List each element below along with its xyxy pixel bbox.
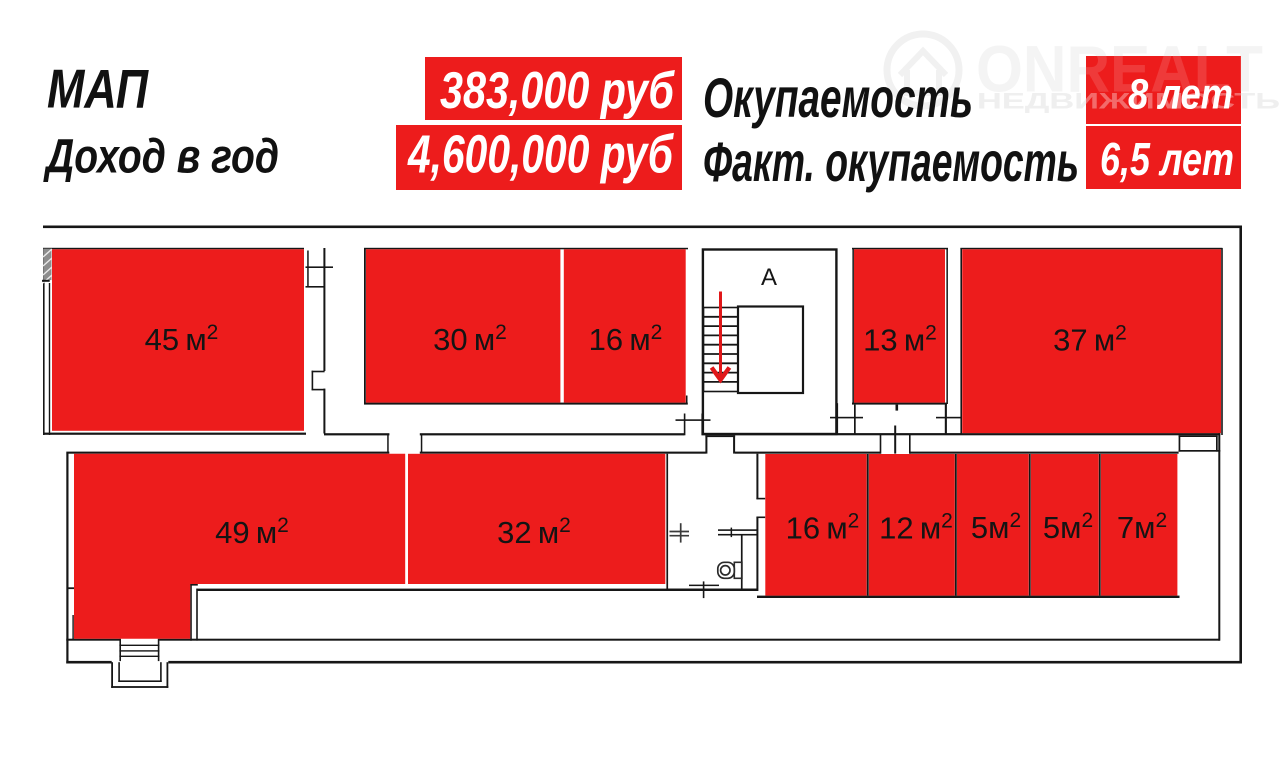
svg-text:Окупаемость: Окупаемость [703,66,973,129]
svg-text:383,000 руб: 383,000 руб [440,62,675,120]
svg-text:А: А [761,264,777,291]
svg-text:МАП: МАП [47,58,149,120]
svg-text:Доход в год: Доход в год [43,131,279,184]
svg-text:6,5 лет: 6,5 лет [1100,133,1234,185]
svg-text:4,600,000 руб: 4,600,000 руб [407,125,674,185]
svg-text:Факт. окупаемость: Факт. окупаемость [703,130,1079,193]
svg-text:НЕДВИЖИМОСТЬ: НЕДВИЖИМОСТЬ [977,89,1280,114]
